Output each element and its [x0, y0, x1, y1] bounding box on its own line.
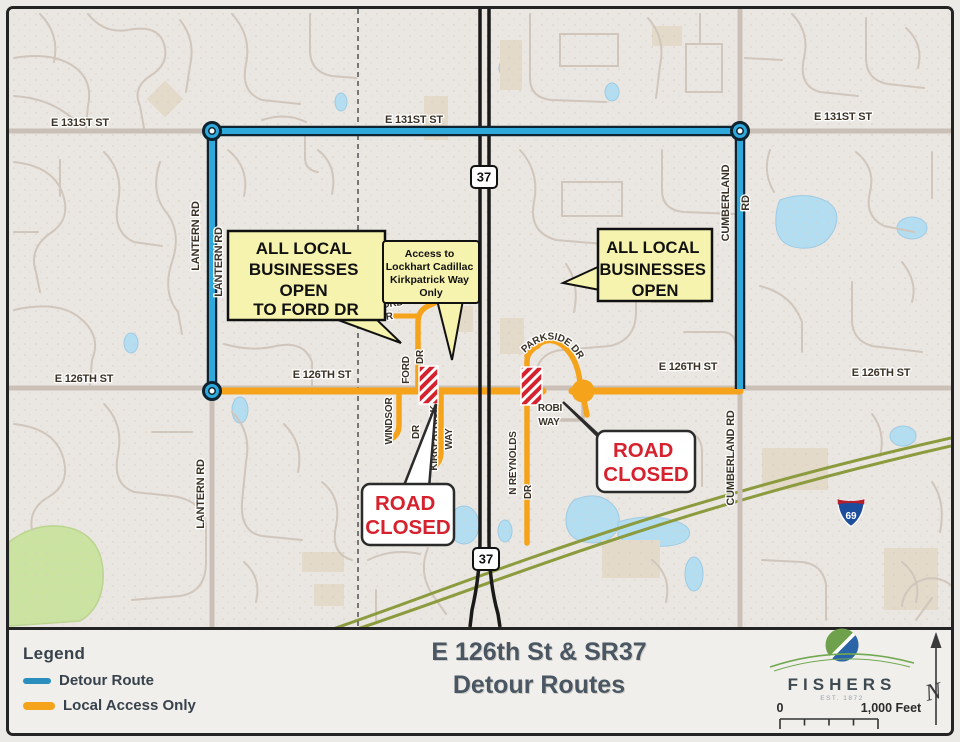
- map-title-line1: E 126th St & SR37: [269, 636, 809, 669]
- svg-text:69: 69: [845, 511, 857, 522]
- label-reynolds-1: N REYNOLDS: [508, 431, 519, 495]
- info-bar: Legend Detour Route Local Access Only E …: [9, 627, 951, 733]
- label-e126-left: E 126TH ST: [55, 373, 114, 385]
- label-e126-mid: E 126TH ST: [293, 369, 352, 381]
- label-cumberland-upper-rd: RD: [740, 195, 752, 211]
- north-label: N: [922, 678, 946, 707]
- legend-item-local-access: Local Access Only: [23, 697, 196, 714]
- fishers-logo-name: FISHERS: [788, 675, 897, 694]
- north-arrow: N: [922, 632, 946, 725]
- label-lantern-upper: LANTERN RD: [190, 201, 202, 271]
- label-windsor-1: WINDSOR: [384, 397, 395, 445]
- logo-and-scale: FISHERS EST. 1872 0 1,000 Feet: [753, 626, 949, 734]
- detour-route-swatch: [23, 678, 51, 684]
- legend-item-detour: Detour Route: [23, 672, 196, 689]
- label-robi-2: WAY: [538, 417, 560, 428]
- map-title: E 126th St & SR37 Detour Routes: [269, 636, 809, 702]
- label-reynolds-2: DR: [523, 484, 534, 499]
- legend: Legend Detour Route Local Access Only: [23, 644, 196, 714]
- closure-marker-kirkpatrick: [419, 366, 438, 404]
- label-cumberland-upper: CUMBERLAND: [720, 164, 732, 241]
- map-canvas: E 131ST ST E 131ST ST E 131ST ST E 126TH…: [9, 9, 951, 627]
- svg-text:ROAD CLOSED: ROAD CLOSED: [603, 439, 688, 486]
- label-windsor-2: DR: [411, 424, 422, 439]
- sr37-shield-north: 37: [471, 166, 497, 188]
- legend-item-label: Local Access Only: [63, 697, 196, 714]
- label-kirkpatrick-2: WAY: [444, 428, 455, 450]
- label-lantern-mid: LANTERN RD: [213, 227, 225, 297]
- svg-text:ROAD CLOSED: ROAD CLOSED: [365, 492, 450, 539]
- closure-marker-robi: [521, 367, 542, 405]
- label-e131-mid: E 131ST ST: [385, 114, 443, 126]
- scale-zero: 0: [777, 701, 784, 715]
- legend-title: Legend: [23, 644, 196, 664]
- label-ford-dr-2: DR: [415, 349, 426, 364]
- map-poster-frame: E 131ST ST E 131ST ST E 131ST ST E 126TH…: [6, 6, 954, 736]
- fishers-logo-est: EST. 1872: [820, 695, 864, 702]
- local-access-swatch: [23, 702, 55, 710]
- label-cumberland-lower: CUMBERLAND RD: [725, 410, 737, 505]
- sr37-shield-south: 37: [473, 548, 499, 570]
- detour-map: E 131ST ST E 131ST ST E 131ST ST E 126TH…: [9, 9, 951, 627]
- label-robi-1: ROBI: [538, 403, 563, 414]
- label-lantern-lower: LANTERN RD: [195, 459, 207, 529]
- label-e131-right: E 131ST ST: [814, 111, 872, 123]
- label-e131-left: E 131ST ST: [51, 117, 109, 129]
- fishers-logo-icon: [770, 626, 914, 676]
- svg-text:37: 37: [477, 170, 491, 185]
- label-e126-right: E 126TH ST: [852, 367, 911, 379]
- scale-max: 1,000 Feet: [861, 701, 922, 715]
- label-e126-right-mid: E 126TH ST: [659, 361, 718, 373]
- svg-text:37: 37: [479, 552, 493, 567]
- label-ford-dr-1: FORD: [401, 356, 412, 384]
- logo-scale-north-svg: FISHERS EST. 1872 0 1,000 Feet: [753, 626, 949, 734]
- map-title-line2: Detour Routes: [269, 669, 809, 702]
- legend-item-label: Detour Route: [59, 672, 154, 689]
- roundabout: [572, 380, 595, 403]
- scale-bar: 0 1,000 Feet: [777, 701, 923, 729]
